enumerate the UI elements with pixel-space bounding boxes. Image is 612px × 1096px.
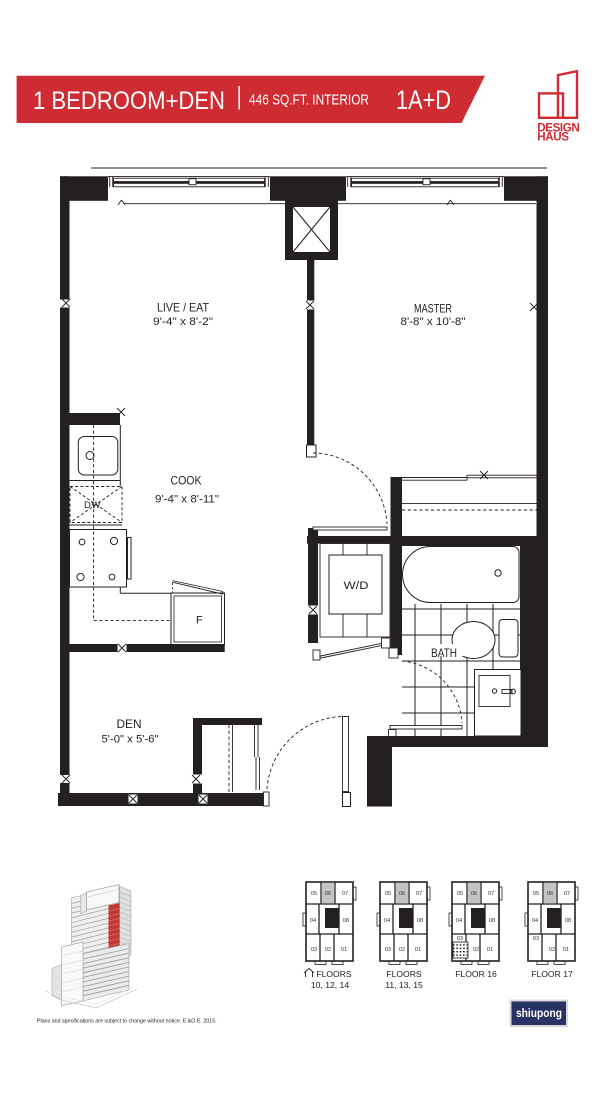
svg-text:1A+D: 1A+D	[396, 85, 451, 115]
svg-text:W/D: W/D	[344, 580, 369, 592]
svg-text:07: 07	[564, 891, 570, 897]
svg-text:06: 06	[471, 891, 477, 897]
svg-text:03: 03	[385, 947, 391, 953]
svg-text:05: 05	[533, 891, 539, 897]
svg-text:FLOORS: FLOORS	[316, 969, 352, 979]
svg-text:08: 08	[565, 918, 571, 924]
svg-text:07: 07	[416, 891, 422, 897]
svg-text:04: 04	[384, 918, 390, 924]
svg-text:10, 12, 14: 10, 12, 14	[311, 980, 349, 990]
svg-text:1 BEDROOM+DEN: 1 BEDROOM+DEN	[33, 87, 225, 115]
svg-text:FLOOR 17: FLOOR 17	[531, 969, 573, 979]
svg-text:05: 05	[385, 891, 391, 897]
svg-text:04: 04	[310, 918, 316, 924]
svg-text:LIVE / EAT: LIVE / EAT	[157, 302, 209, 315]
svg-text:9'-4" x 8'-2": 9'-4" x 8'-2"	[153, 316, 213, 328]
svg-text:05: 05	[457, 891, 463, 897]
svg-text:DEN: DEN	[117, 718, 142, 731]
svg-text:11, 13, 15: 11, 13, 15	[385, 980, 423, 990]
svg-text:01: 01	[487, 947, 493, 953]
svg-text:02: 02	[325, 947, 331, 953]
svg-text:F: F	[196, 615, 203, 627]
svg-text:06: 06	[547, 891, 553, 897]
svg-text:Plans and specifications are s: Plans and specifications are subject to …	[37, 1019, 217, 1025]
svg-text:HAUS: HAUS	[537, 131, 569, 144]
svg-text:MASTER: MASTER	[414, 303, 452, 316]
svg-text:8'-8" x 10'-8": 8'-8" x 10'-8"	[401, 316, 466, 328]
svg-text:04: 04	[532, 918, 538, 924]
svg-text:02: 02	[399, 947, 405, 953]
svg-text:9'-4" x 8'-11": 9'-4" x 8'-11"	[155, 494, 219, 506]
svg-text:01: 01	[415, 947, 421, 953]
svg-text:5'-0" x 5'-6": 5'-0" x 5'-6"	[102, 734, 159, 746]
svg-text:08: 08	[343, 918, 349, 924]
svg-text:FLOOR 16: FLOOR 16	[455, 969, 497, 979]
svg-text:01: 01	[341, 947, 347, 953]
svg-text:BATH: BATH	[431, 647, 457, 660]
svg-text:shiupong: shiupong	[516, 1006, 562, 1020]
svg-text:DW: DW	[84, 500, 101, 511]
svg-text:01: 01	[563, 947, 569, 953]
svg-text:06: 06	[325, 891, 331, 897]
svg-text:05: 05	[311, 891, 317, 897]
svg-text:FLOORS: FLOORS	[386, 969, 422, 979]
svg-text:08: 08	[489, 918, 495, 924]
svg-text:03: 03	[533, 936, 539, 942]
svg-text:03: 03	[311, 947, 317, 953]
svg-text:04: 04	[456, 918, 462, 924]
svg-text:07: 07	[342, 891, 348, 897]
svg-text:446 SQ.FT. INTERIOR: 446 SQ.FT. INTERIOR	[249, 93, 369, 109]
svg-text:08: 08	[417, 918, 423, 924]
svg-text:02: 02	[549, 947, 555, 953]
svg-text:03: 03	[457, 936, 463, 942]
svg-text:02: 02	[473, 947, 479, 953]
svg-text:07: 07	[488, 891, 494, 897]
svg-text:06: 06	[399, 891, 405, 897]
svg-text:COOK: COOK	[171, 475, 202, 488]
